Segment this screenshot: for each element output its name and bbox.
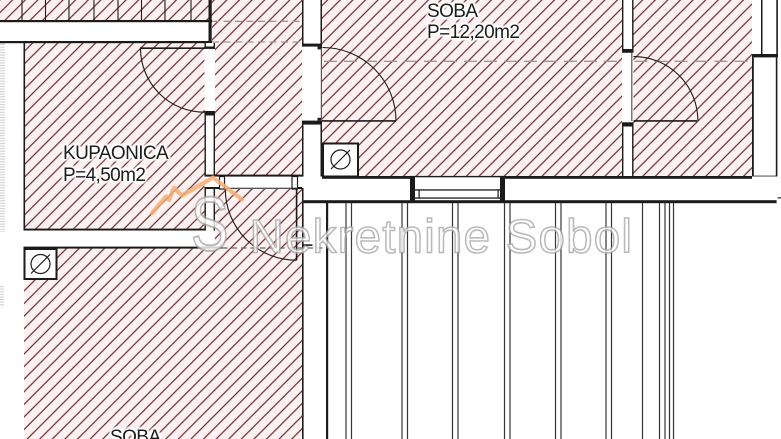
svg-text:S: S (191, 182, 228, 268)
svg-text:Nekretnine Sobol: Nekretnine Sobol (250, 211, 634, 264)
